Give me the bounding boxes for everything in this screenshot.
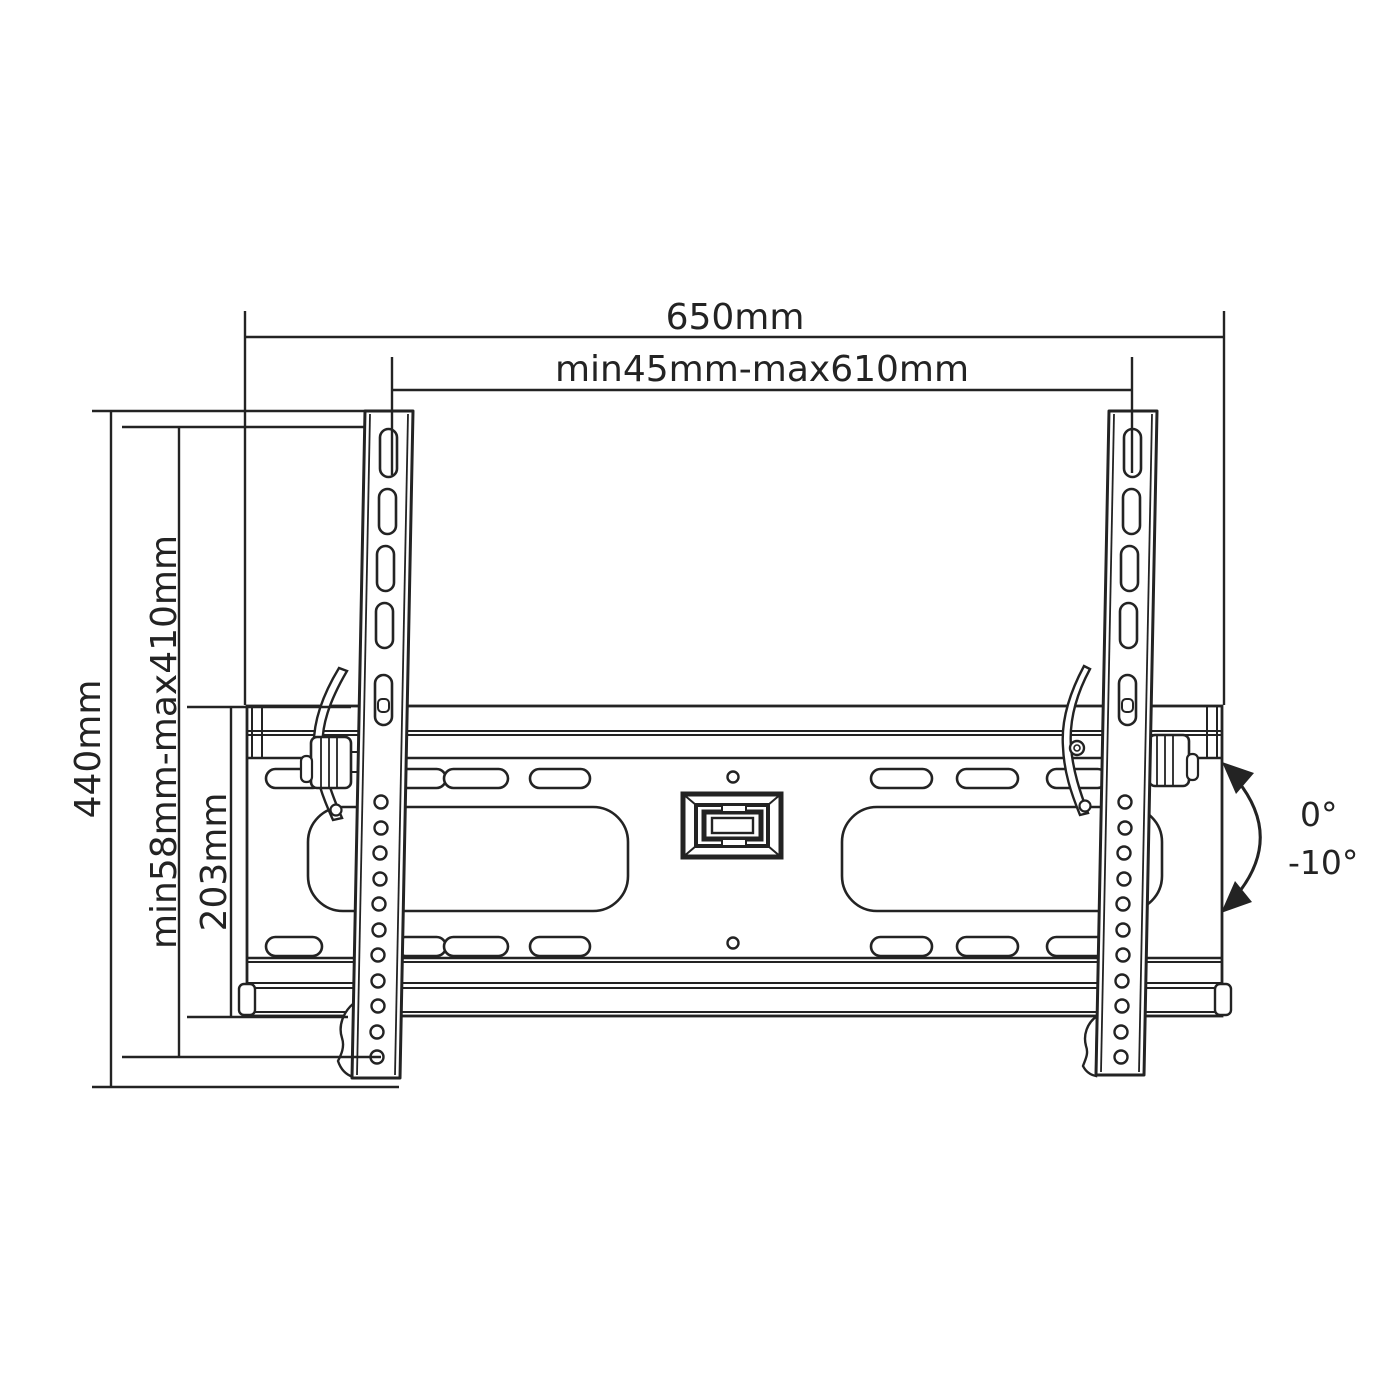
tv-mount-technical-drawing: 650mm min45mm-max610mm 440mm min58mm-max…	[0, 0, 1400, 1400]
arm-hole	[1119, 822, 1132, 835]
arm-hole	[373, 924, 386, 937]
arm-hole	[1115, 1051, 1128, 1064]
plate-screw-hole-top	[728, 772, 739, 783]
arm-slot	[1123, 489, 1140, 534]
arm-hole	[374, 847, 387, 860]
tilt-lower-angle-label: -10°	[1288, 843, 1358, 882]
arm-hole	[1115, 1026, 1128, 1039]
latch-tab-bottom	[722, 839, 746, 846]
arm-hole	[372, 975, 385, 988]
arm-hole	[1117, 924, 1130, 937]
arm-slot	[377, 546, 394, 591]
tilt-arc-arrowhead-bottom	[1221, 881, 1252, 913]
arm-slot-tab	[378, 699, 389, 712]
arm-hole	[1116, 975, 1129, 988]
dim-vesa-height-range-label: min58mm-max410mm	[144, 535, 185, 949]
tilt-arc-arrowhead-top	[1222, 762, 1254, 794]
arm-hole	[1118, 873, 1131, 886]
tilt-arc	[1236, 780, 1260, 896]
mounting-slot	[530, 769, 590, 788]
dim-vesa-width-range-label: min45mm-max610mm	[555, 349, 969, 390]
arm-hole	[1117, 949, 1130, 962]
latch-tab-top	[722, 805, 746, 812]
arm-slot	[376, 603, 393, 648]
arm-hole	[1116, 1000, 1129, 1013]
mounting-slot	[871, 937, 932, 956]
arm-slot-tab	[1122, 699, 1133, 712]
arm-hole	[375, 822, 388, 835]
plate-end-cap	[1215, 984, 1231, 1015]
arm-hole	[375, 796, 388, 809]
mounting-slot	[444, 769, 508, 788]
arm-hole	[372, 949, 385, 962]
arm-slot	[1121, 546, 1138, 591]
knob-tab-right	[1187, 754, 1198, 780]
arm-slot	[1120, 603, 1137, 648]
lever-bolt-left	[331, 805, 342, 816]
lock-latch	[683, 794, 781, 857]
dim-plate-height-label: 203mm	[194, 793, 235, 932]
arm-hole	[1118, 847, 1131, 860]
tilt-angle-annotation: 0° -10°	[1221, 762, 1358, 913]
tilt-upper-angle-label: 0°	[1300, 795, 1338, 834]
mounting-slot	[444, 937, 508, 956]
knob-tab-left	[301, 756, 312, 782]
arm-slot	[379, 489, 396, 534]
mounting-slot	[957, 937, 1018, 956]
mounting-slot	[266, 937, 322, 956]
dim-total-height-label: 440mm	[68, 680, 109, 819]
arm-slot	[380, 429, 397, 477]
tilt-knob-right	[1149, 735, 1189, 786]
latch-slider-window	[712, 818, 753, 833]
mounting-slot	[871, 769, 932, 788]
plate-end-cap	[239, 984, 255, 1015]
mounting-slot	[957, 769, 1018, 788]
plate-screw-hole-bottom	[728, 938, 739, 949]
arm-hole	[371, 1026, 384, 1039]
arm-hole	[372, 1000, 385, 1013]
arm-hole	[373, 898, 386, 911]
arm-hole	[1119, 796, 1132, 809]
lever-pivot-nut-right-inner	[1074, 745, 1080, 751]
dim-total-width-label: 650mm	[666, 297, 805, 338]
arm-hole	[1117, 898, 1130, 911]
arm-hole	[374, 873, 387, 886]
tilt-knob-left	[311, 737, 351, 788]
diagram-canvas: 650mm min45mm-max610mm 440mm min58mm-max…	[0, 0, 1400, 1400]
mounting-slot	[530, 937, 590, 956]
lever-bolt-right	[1080, 801, 1091, 812]
